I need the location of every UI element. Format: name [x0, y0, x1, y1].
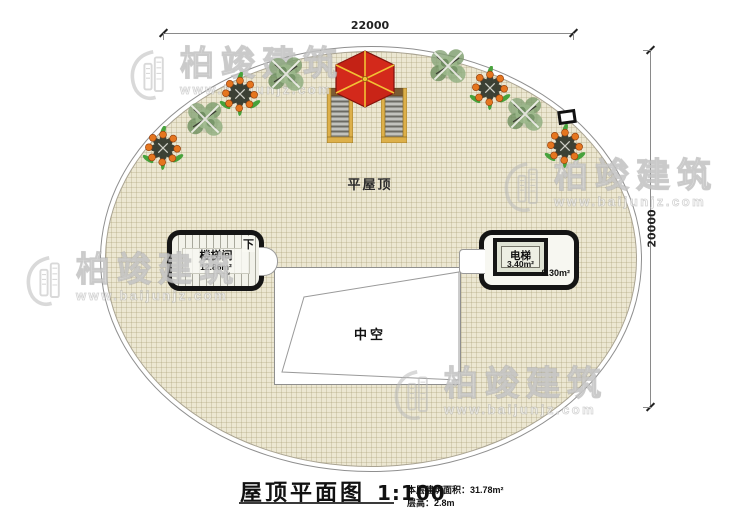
- stair-room: 楼梯间 12.86m² 下 ↘: [167, 230, 264, 291]
- tree-icon: [424, 42, 472, 90]
- roof-vent-icon: [557, 109, 577, 125]
- dimension-extension: [643, 50, 651, 51]
- logo-building-icon: [22, 252, 70, 310]
- elevator-shaft-area: 3.40m²: [497, 259, 544, 269]
- elevator-shaft: 电梯 3.40m²: [493, 238, 548, 276]
- fruit-plant-icon: [141, 126, 185, 170]
- dimension-extension: [573, 33, 574, 40]
- roof-plan-canvas: 22000 20000 平屋顶 柏竣建筑 www.baijunjz.com 柏竣…: [0, 0, 750, 530]
- dimension-extension: [643, 407, 651, 408]
- void-label: 中空: [335, 324, 405, 343]
- stair-room-name: 楼梯间: [183, 250, 249, 262]
- flat-roof-label: 平屋顶: [330, 174, 410, 193]
- tree-icon: [262, 50, 310, 98]
- floor-area-row: 本层建筑面积：31.78m²: [407, 483, 504, 496]
- void-opening: 中空: [274, 267, 461, 385]
- stair-direction-arrow-icon: ↘: [224, 268, 231, 277]
- top-dimension-line: [163, 33, 573, 34]
- fruit-plant-icon: [218, 72, 262, 116]
- umbrella-icon: [327, 50, 403, 108]
- dimension-extension: [163, 33, 164, 40]
- floor-height-row: 层高：2.8m: [407, 496, 455, 509]
- elevator-opening: [459, 249, 485, 274]
- stair-room-label: 楼梯间 12.86m²: [182, 248, 250, 274]
- elevator-room-area: 8.30m²: [541, 268, 570, 278]
- title-underline: [239, 502, 394, 504]
- right-dimension-value: 20000: [646, 199, 659, 259]
- tree-icon: [501, 90, 549, 138]
- elevator-room: 电梯 3.40m² 8.30m²: [479, 230, 579, 290]
- floor-area-label: 本层建筑面积：: [407, 485, 470, 495]
- floor-height-label: 层高：: [407, 498, 434, 508]
- fruit-plant-icon: [543, 124, 587, 168]
- floor-area-value: 31.78m²: [470, 485, 504, 495]
- logo-building-icon: [126, 46, 174, 104]
- stair-room-area: 12.86m²: [183, 262, 249, 272]
- stair-direction-label: 下: [242, 236, 255, 252]
- top-dimension-value: 22000: [340, 19, 400, 32]
- floor-height-value: 2.8m: [434, 498, 455, 508]
